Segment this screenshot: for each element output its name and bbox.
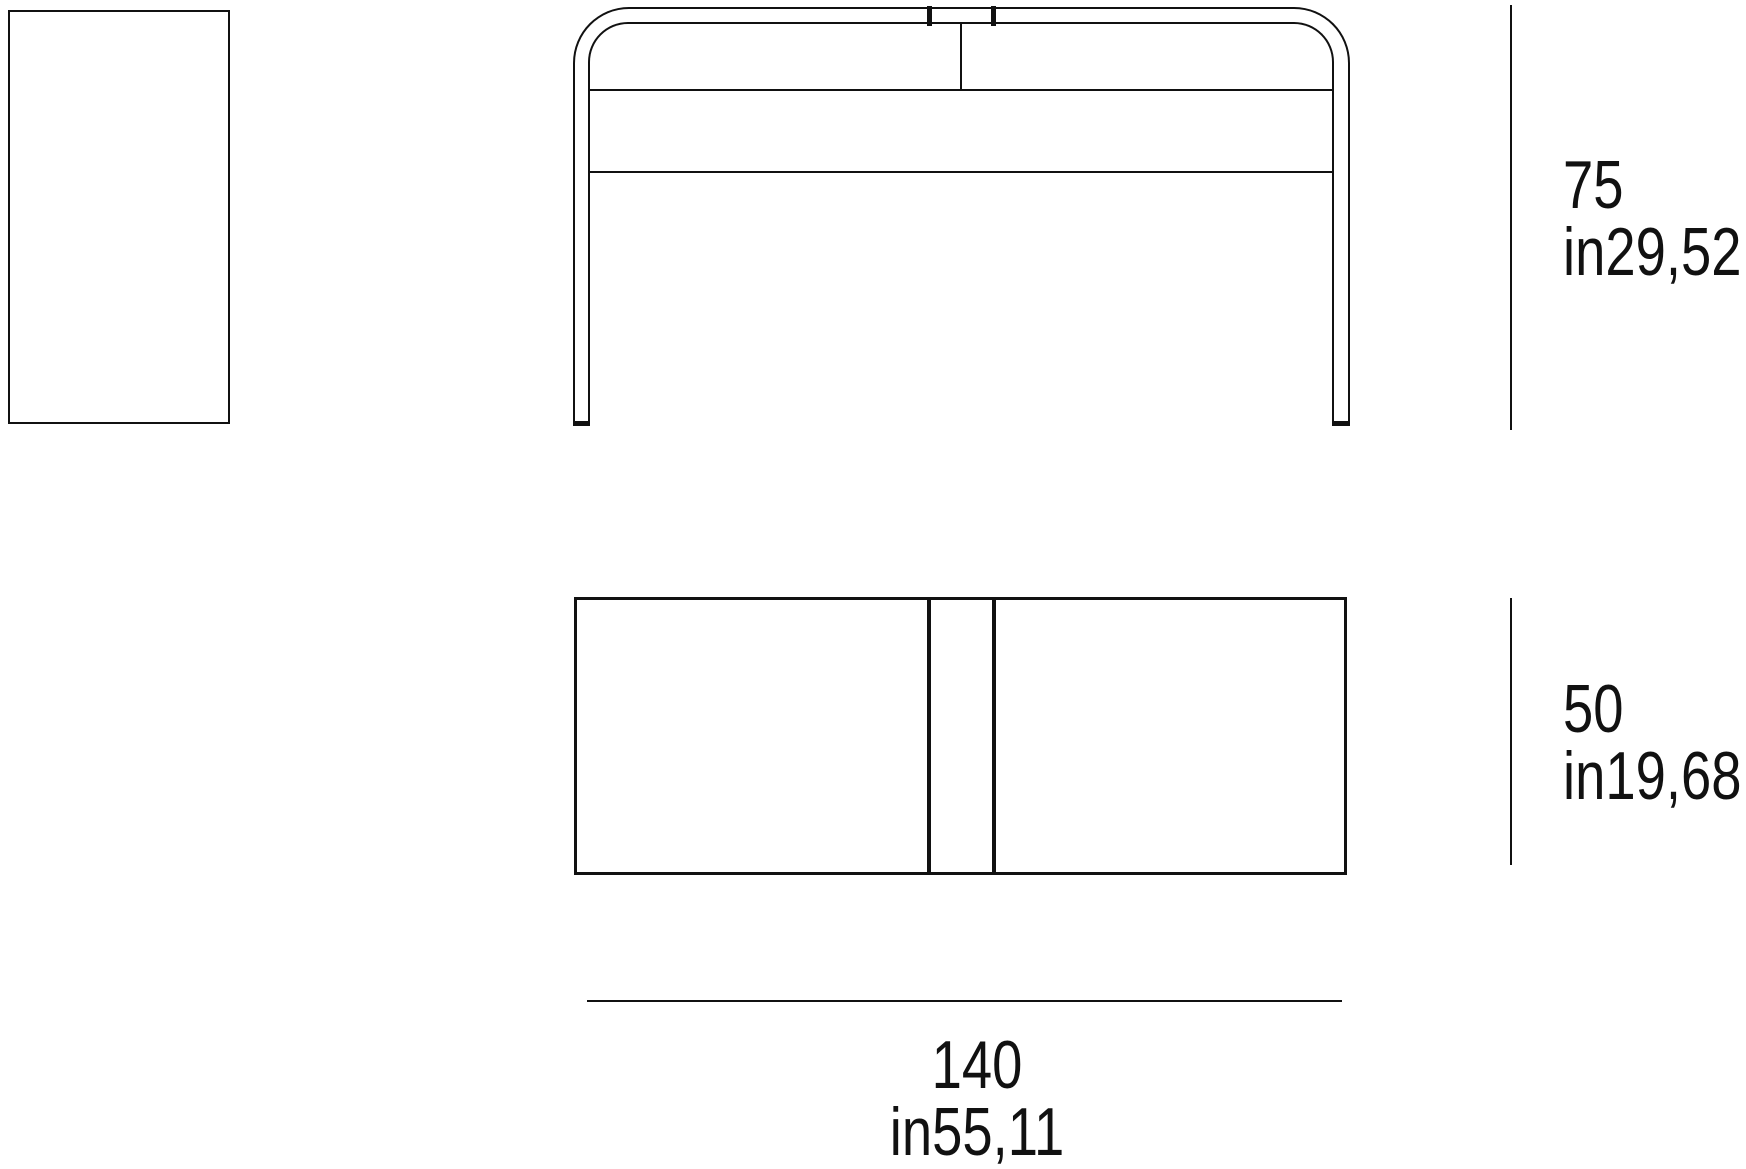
depth-dimension-line xyxy=(1510,598,1512,865)
height-dimension-line xyxy=(1510,5,1512,430)
top-view-split-line-right xyxy=(992,598,996,874)
top-view-split-line-left xyxy=(927,598,931,874)
width-dimension-line xyxy=(587,1000,1342,1002)
front-view-drawer-divider-line xyxy=(960,23,962,91)
width-value-cm: 140 xyxy=(665,1032,1289,1099)
front-view-tabletop-split-tick-left xyxy=(927,6,932,26)
height-dimension-label: 75 in29,52 xyxy=(1563,152,1746,286)
width-dimension-label: 140 in55,11 xyxy=(587,1032,1367,1166)
width-value-inches: in55,11 xyxy=(665,1099,1289,1166)
front-view-right-leg-foot xyxy=(1333,421,1350,426)
dimension-drawing-canvas: 75 in29,52 50 in19,68 140 in55,11 xyxy=(0,0,1746,1169)
front-view-left-leg-foot xyxy=(573,421,590,426)
depth-value-inches: in19,68 xyxy=(1563,743,1741,810)
height-value-inches: in29,52 xyxy=(1563,219,1741,286)
height-value-cm: 75 xyxy=(1563,152,1741,219)
front-view-apron-bottom-line xyxy=(589,171,1333,173)
front-view-tabletop-split-tick-right xyxy=(991,6,996,26)
side-view-outline xyxy=(8,10,230,424)
depth-value-cm: 50 xyxy=(1563,676,1741,743)
top-view-outline xyxy=(574,597,1347,875)
depth-dimension-label: 50 in19,68 xyxy=(1563,676,1746,810)
